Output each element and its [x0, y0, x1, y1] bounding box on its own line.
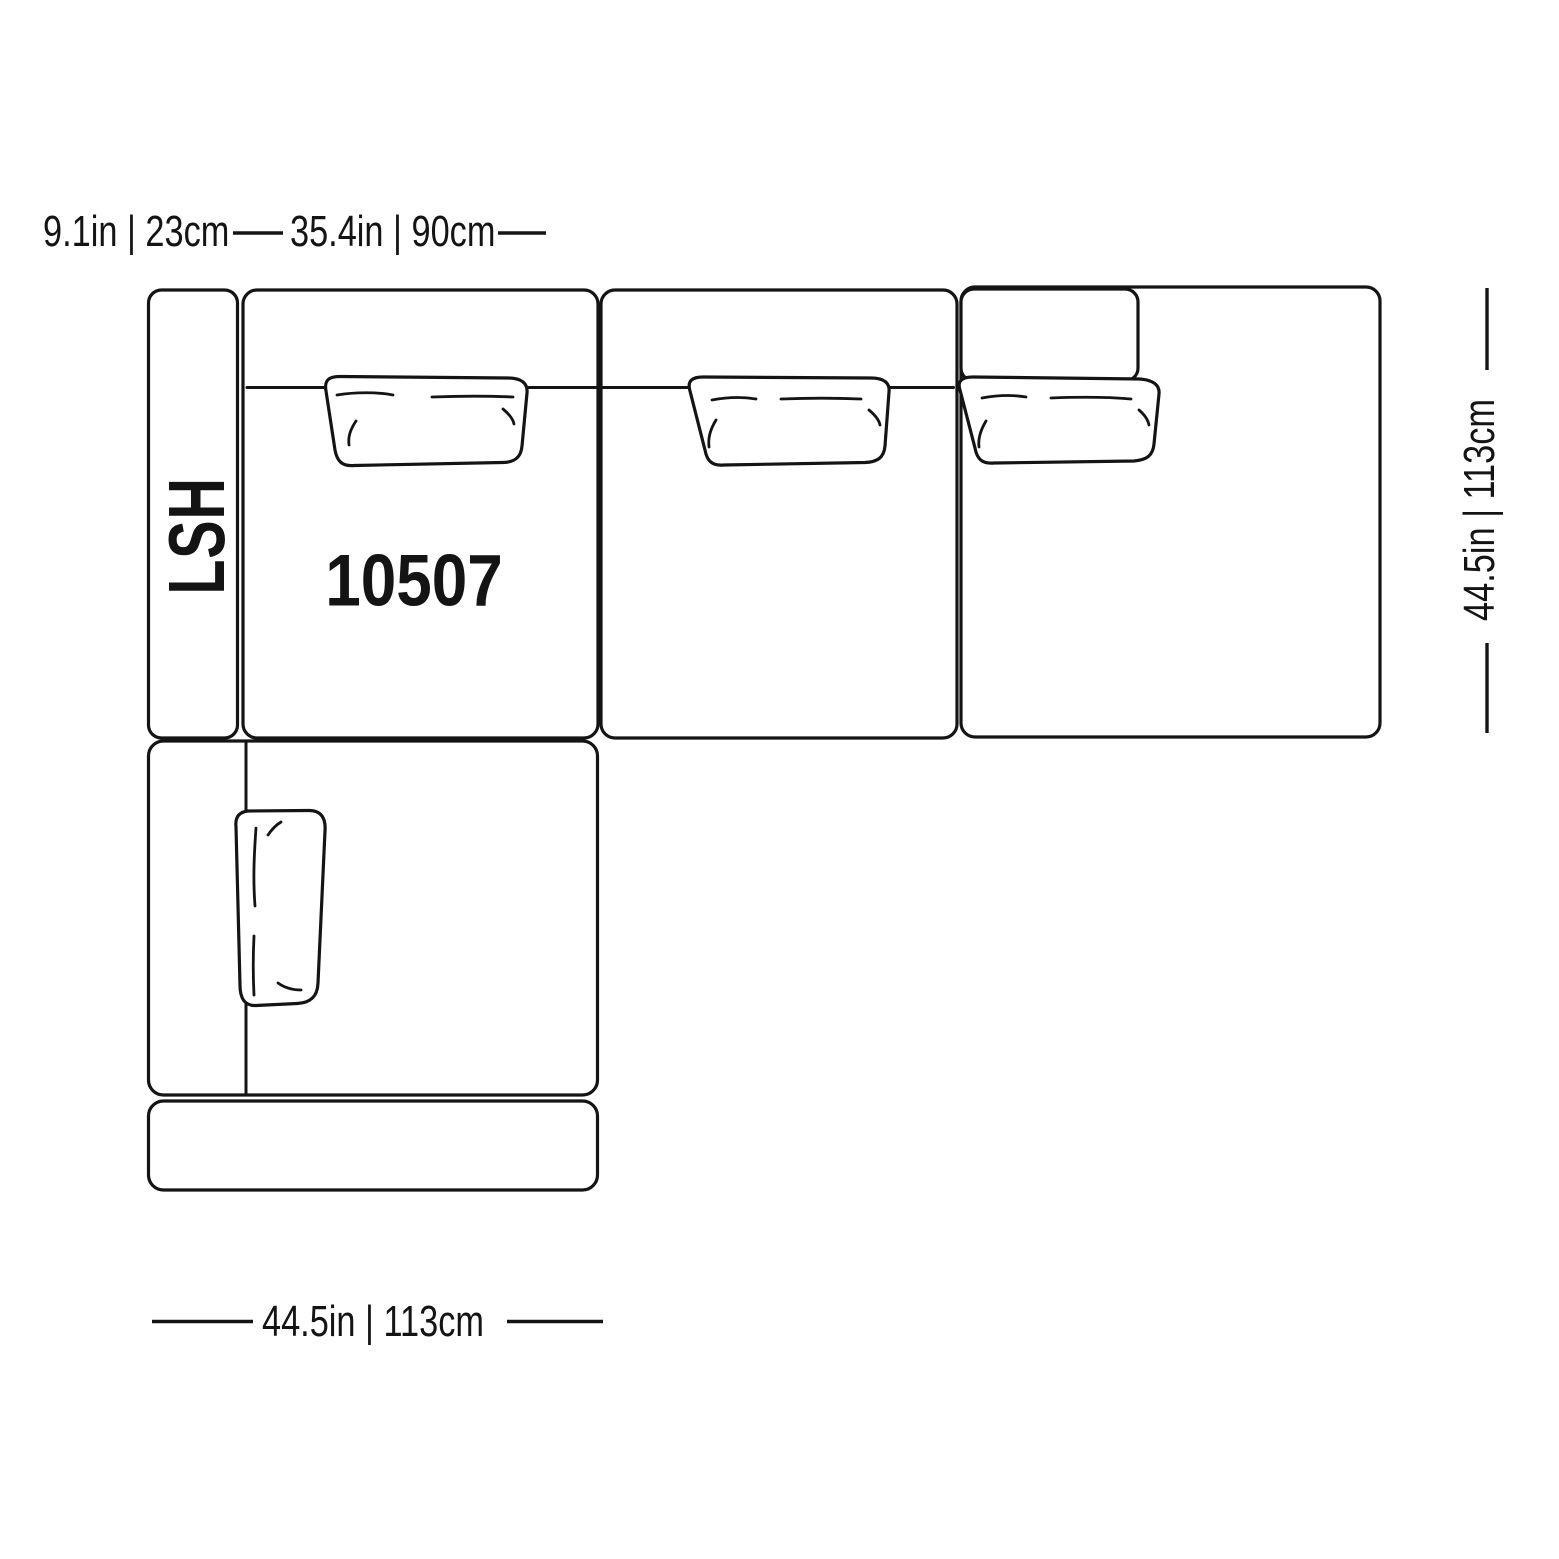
chaise-cushion-seam-lower	[253, 936, 254, 995]
seat-section-2	[601, 290, 957, 738]
back-cushion-3	[959, 377, 1159, 463]
cushion-1-seam-right	[432, 396, 513, 397]
orientation-label: LSH	[157, 477, 237, 594]
depth-label: 44.5in | 113cm	[1458, 399, 1502, 621]
chaise-width-label: 44.5in | 113cm	[262, 1300, 484, 1344]
chaise-section	[149, 741, 598, 1095]
back-cushion-2-outline	[689, 377, 889, 465]
cushion-2-seam-right	[781, 398, 861, 399]
back-cushion-2	[689, 377, 889, 465]
section-3-backrest	[961, 289, 1138, 381]
sofa-dimension-diagram: 9.1in | 23cm 35.4in | 90cm 44.5in | 113c…	[0, 0, 1559, 1559]
arm-width-label: 9.1in | 23cm	[43, 210, 229, 254]
seat-width-label: 35.4in | 90cm	[290, 210, 495, 254]
chaise-cushion-outline	[236, 811, 325, 1006]
back-cushion-3-outline	[959, 377, 1159, 463]
model-number: 10507	[325, 545, 503, 618]
back-cushion-1	[326, 377, 528, 466]
chaise-front-band	[149, 1101, 598, 1190]
sofa-top-view-drawing	[0, 0, 1559, 1559]
seat-section-1	[243, 290, 598, 738]
chaise-back-cushion	[236, 811, 325, 1006]
